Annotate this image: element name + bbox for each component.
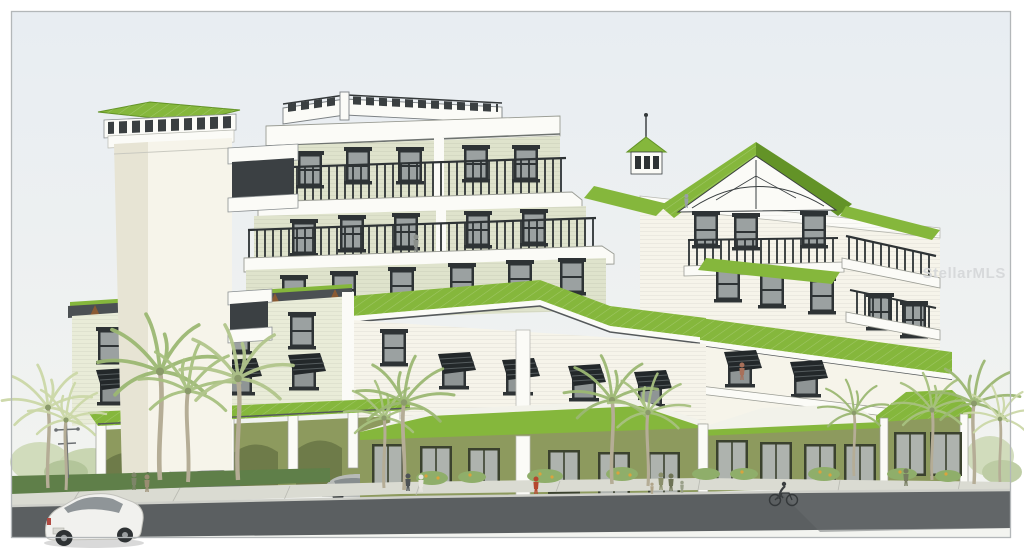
rendering-canvas: StellarMLS: [0, 0, 1024, 550]
window: [288, 312, 316, 350]
stellar-mls-watermark: StellarMLS: [922, 265, 1006, 282]
storefront-window: [372, 444, 404, 488]
tower-balcony-box: [228, 289, 272, 343]
storefront-window: [930, 432, 962, 476]
window: [380, 329, 408, 367]
tower-balcony-box: [228, 144, 298, 212]
taillight: [47, 518, 51, 525]
mls-listing-rendering-image: StellarMLS: [0, 0, 1024, 550]
